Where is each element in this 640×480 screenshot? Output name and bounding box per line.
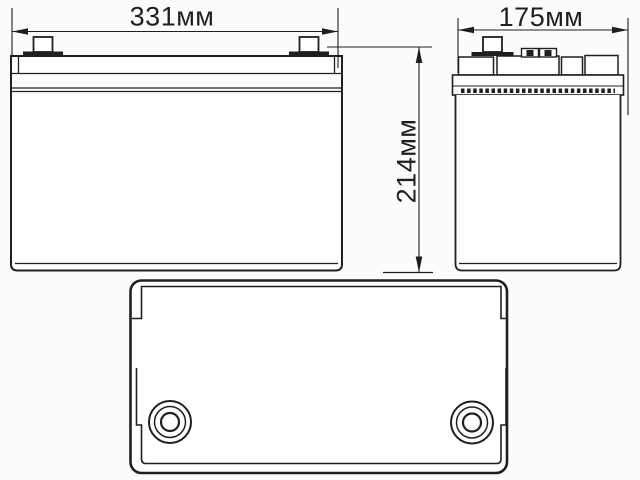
side-view [453, 37, 624, 271]
front-right-terminal-post [300, 37, 319, 52]
front-left-terminal-post [34, 37, 53, 52]
side-terminal-post [483, 37, 502, 52]
depth-arrow-right [612, 27, 628, 34]
side-vent-cap-left-plug [527, 50, 534, 56]
front-right-terminal-base [289, 52, 329, 56]
top-case-outline [131, 281, 508, 474]
height-arrow-bottom [416, 257, 423, 273]
battery-dimension-drawing: 331мм 175мм [0, 0, 640, 480]
height-dimension-label: 214мм [392, 119, 422, 204]
side-lid-block-right [562, 57, 583, 75]
height-arrow-top [416, 47, 423, 63]
front-view [11, 37, 342, 271]
side-case-outline [456, 95, 621, 271]
top-view [131, 281, 508, 474]
side-lid-block-center [497, 56, 559, 75]
width-dimension-label: 331мм [130, 2, 215, 32]
drawing-canvas: 331мм 175мм [0, 0, 640, 480]
depth-dimension-label: 175мм [499, 2, 584, 32]
depth-arrow-left [458, 27, 474, 34]
side-vent-cap-right-plug [545, 50, 552, 56]
side-lid-block-far-right [585, 56, 618, 76]
side-lid-block-left [459, 57, 494, 75]
front-left-terminal-base [23, 52, 63, 56]
width-arrow-left [12, 28, 28, 35]
width-arrow-right [322, 28, 338, 35]
